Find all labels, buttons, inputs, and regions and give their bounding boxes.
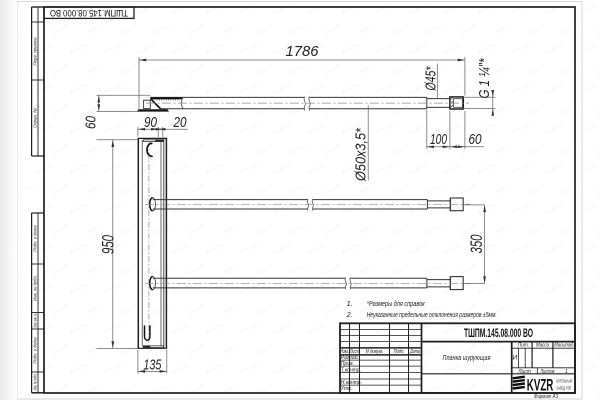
svg-text:ТШПМ.145.08.000 ВО: ТШПМ.145.08.000 ВО <box>50 7 128 18</box>
svg-text:2.: 2. <box>346 310 353 319</box>
svg-text:Масштаб: Масштаб <box>554 343 573 349</box>
svg-text:Листов: Листов <box>540 369 555 375</box>
svg-text:ТШПМ.145.08.000 ВО: ТШПМ.145.08.000 ВО <box>464 326 533 340</box>
svg-text:350: 350 <box>467 234 486 253</box>
svg-text:Т.контр.: Т.контр. <box>341 367 361 373</box>
svg-text:Неуказанные предельные отклоне: Неуказанные предельные отклонения размер… <box>367 310 497 319</box>
svg-text:Подп. и дата: Подп. и дата <box>33 225 38 252</box>
svg-text:Лист: Лист <box>517 369 531 375</box>
svg-text:135: 135 <box>143 356 161 373</box>
svg-text:И: И <box>512 355 517 362</box>
svg-text:Подп. и дата: Подп. и дата <box>33 337 38 364</box>
svg-text:Дата: Дата <box>409 349 420 355</box>
svg-text:Масса: Масса <box>536 343 549 349</box>
svg-text:1786: 1786 <box>286 43 320 60</box>
svg-text:Инв. № подл.: Инв. № подл. <box>33 374 38 391</box>
svg-text:90: 90 <box>144 114 158 131</box>
svg-text:100: 100 <box>430 131 447 148</box>
svg-text:Взам. инв. №: Взам. инв. № <box>33 313 38 327</box>
svg-text:G 1 ¼″*: G 1 ¼″* <box>477 57 493 98</box>
svg-text:Формат А3: Формат А3 <box>534 394 559 400</box>
svg-text:Перв. примен.: Перв. примен. <box>33 36 38 65</box>
svg-text:ЗАВОД РЭП: ЗАВОД РЭП <box>556 385 571 390</box>
svg-text:950: 950 <box>99 235 118 254</box>
svg-text:Утв.: Утв. <box>341 386 352 392</box>
svg-text:Планка шурующая: Планка шурующая <box>443 353 491 362</box>
svg-text:Ø50х3,5*: Ø50х3,5* <box>353 127 370 182</box>
svg-text:Справ. №: Справ. № <box>33 108 38 128</box>
svg-text:1: 1 <box>565 369 568 375</box>
svg-text:Подп.: Подп. <box>394 349 405 355</box>
svg-text:20: 20 <box>173 114 187 131</box>
svg-text:Ø45*: Ø45* <box>423 66 440 92</box>
svg-text:КОТЕЛЬНЫЙ: КОТЕЛЬНЫЙ <box>556 379 572 384</box>
svg-text:Инв. № дубл.: Инв. № дубл. <box>33 275 38 301</box>
svg-text:KVZR: KVZR <box>527 377 554 395</box>
svg-text:Пров.: Пров. <box>341 361 354 367</box>
svg-text:1.: 1. <box>347 299 353 308</box>
svg-text:*Размеры для справок: *Размеры для справок <box>367 299 425 308</box>
svg-text:N докум.: N докум. <box>366 349 384 355</box>
svg-text:60: 60 <box>469 131 483 148</box>
svg-text:60: 60 <box>82 115 99 129</box>
svg-text:Лит.: Лит. <box>517 343 530 349</box>
